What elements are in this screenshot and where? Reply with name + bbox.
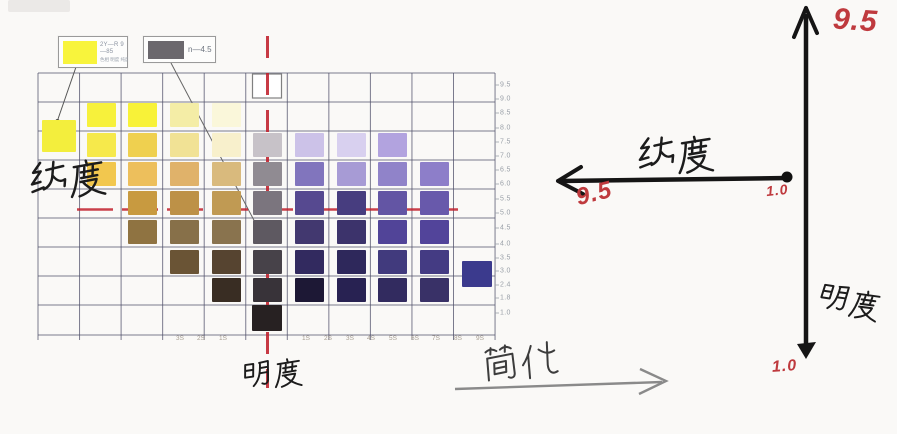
value-tick-label: 4.0 (500, 241, 511, 248)
chart-grid-and-lines (0, 0, 897, 434)
color-swatch (42, 120, 76, 152)
color-swatch (170, 103, 199, 127)
color-swatch (378, 133, 407, 157)
chroma-tick-label: 3S (176, 335, 184, 342)
color-swatch (253, 191, 282, 215)
color-swatch (337, 220, 366, 244)
color-swatch (337, 133, 366, 157)
value-tick-label: 7.5 (500, 139, 511, 146)
color-swatch (378, 191, 407, 215)
color-swatch (253, 250, 282, 274)
value-tick-label: 9.5 (500, 82, 511, 89)
value-tick-label: 5.5 (500, 196, 511, 203)
origin-number: 1.0 (765, 181, 789, 199)
color-swatch (170, 191, 199, 215)
color-swatch (420, 162, 449, 186)
chroma-tick-label: 7S (432, 335, 440, 342)
color-swatch (212, 162, 241, 186)
color-swatch (295, 162, 324, 186)
value-tick-label: 7.0 (500, 153, 511, 160)
legend-yellow-code: 2Y—R 9—85 (100, 42, 128, 56)
color-swatch (212, 278, 241, 302)
annotated-color-chart-image: 2Y—R 9—85 色相 明度 纯度 n—4.5 9.59.08.58.07.5… (0, 0, 897, 434)
bottom-axis-label-handwriting: 明度 (241, 353, 305, 394)
chroma-tick-label: 8S (454, 335, 462, 342)
color-swatch (253, 278, 282, 302)
right-diagram-purity-label-handwriting: 纯度 (635, 132, 717, 180)
color-swatch (128, 220, 157, 244)
color-swatch (295, 278, 324, 302)
color-swatch (87, 103, 116, 127)
value-tick-label: 2.4 (500, 282, 511, 289)
chroma-tick-label: 1S (219, 335, 227, 342)
handwriting-mingdu (241, 353, 305, 394)
legend1-leader-line (58, 67, 76, 119)
color-swatch (212, 250, 241, 274)
value-tick-label: 4.5 (500, 225, 511, 232)
value-axis-bottom-number: 1.0 (771, 357, 797, 377)
chroma-tick-label: 3S (346, 335, 354, 342)
value-tick-label: 1.0 (500, 310, 511, 317)
color-swatch (170, 133, 199, 157)
value-tick-label: 5.0 (500, 210, 511, 217)
color-swatch (337, 278, 366, 302)
legend-yellow-chip (63, 41, 97, 64)
legend-yellow-sublabel: 色相 明度 纯度 (100, 57, 128, 62)
color-swatch (212, 220, 241, 244)
color-swatch (337, 250, 366, 274)
color-swatch (170, 162, 199, 186)
value-tick-label: 9.0 (500, 96, 511, 103)
color-swatch (295, 250, 324, 274)
color-swatch (378, 250, 407, 274)
color-swatch (420, 191, 449, 215)
color-swatch (253, 162, 282, 186)
chroma-tick-label: 9S (476, 335, 484, 342)
color-swatch (295, 133, 324, 157)
legend-neutral-code: n—4.5 (188, 45, 212, 54)
value-tick-label: 8.0 (500, 125, 511, 132)
handwriting-chundu (26, 153, 109, 206)
color-swatch (420, 220, 449, 244)
chroma-tick-label: 2S (324, 335, 332, 342)
color-swatch (295, 191, 324, 215)
value-tick-label: 8.5 (500, 110, 511, 117)
value-axis-top-number: 9.5 (832, 2, 879, 39)
color-swatch (378, 278, 407, 302)
color-swatch (212, 133, 241, 157)
color-swatch (128, 103, 157, 127)
chroma-tick-label: 4S (367, 335, 375, 342)
color-swatch (295, 220, 324, 244)
value-tick-label: 1.8 (500, 295, 511, 302)
handwriting-chundu (635, 132, 717, 180)
color-swatch (128, 162, 157, 186)
value-tick-label: 3.5 (500, 255, 511, 262)
legend-yellow: 2Y—R 9—85 色相 明度 纯度 (58, 36, 128, 68)
color-swatch (252, 305, 282, 331)
legend-neutral: n—4.5 (143, 36, 216, 63)
chroma-tick-label: 2S (197, 335, 205, 342)
chroma-tick-label: 6S (411, 335, 419, 342)
color-swatch (170, 250, 199, 274)
color-swatch (128, 133, 157, 157)
chroma-tick-label: 5S (389, 335, 397, 342)
value-tick-label: 6.0 (500, 181, 511, 188)
color-swatch (420, 250, 449, 274)
color-swatch (212, 191, 241, 215)
value-tick-label: 6.5 (500, 167, 511, 174)
color-swatch (462, 261, 492, 287)
color-swatch (170, 220, 199, 244)
color-swatch (212, 103, 241, 127)
color-swatch (337, 162, 366, 186)
left-axis-label-handwriting: 纯度 (26, 153, 109, 206)
legend-neutral-chip (148, 41, 184, 59)
color-swatch (420, 278, 449, 302)
color-swatch (337, 191, 366, 215)
color-swatch (128, 191, 157, 215)
color-swatch (253, 220, 282, 244)
color-swatch (253, 133, 282, 157)
color-swatch (378, 162, 407, 186)
value-axis-down-arrowhead (797, 342, 816, 359)
color-swatch (378, 220, 407, 244)
value-tick-label: 3.0 (500, 268, 511, 275)
chroma-tick-label: 1S (302, 335, 310, 342)
